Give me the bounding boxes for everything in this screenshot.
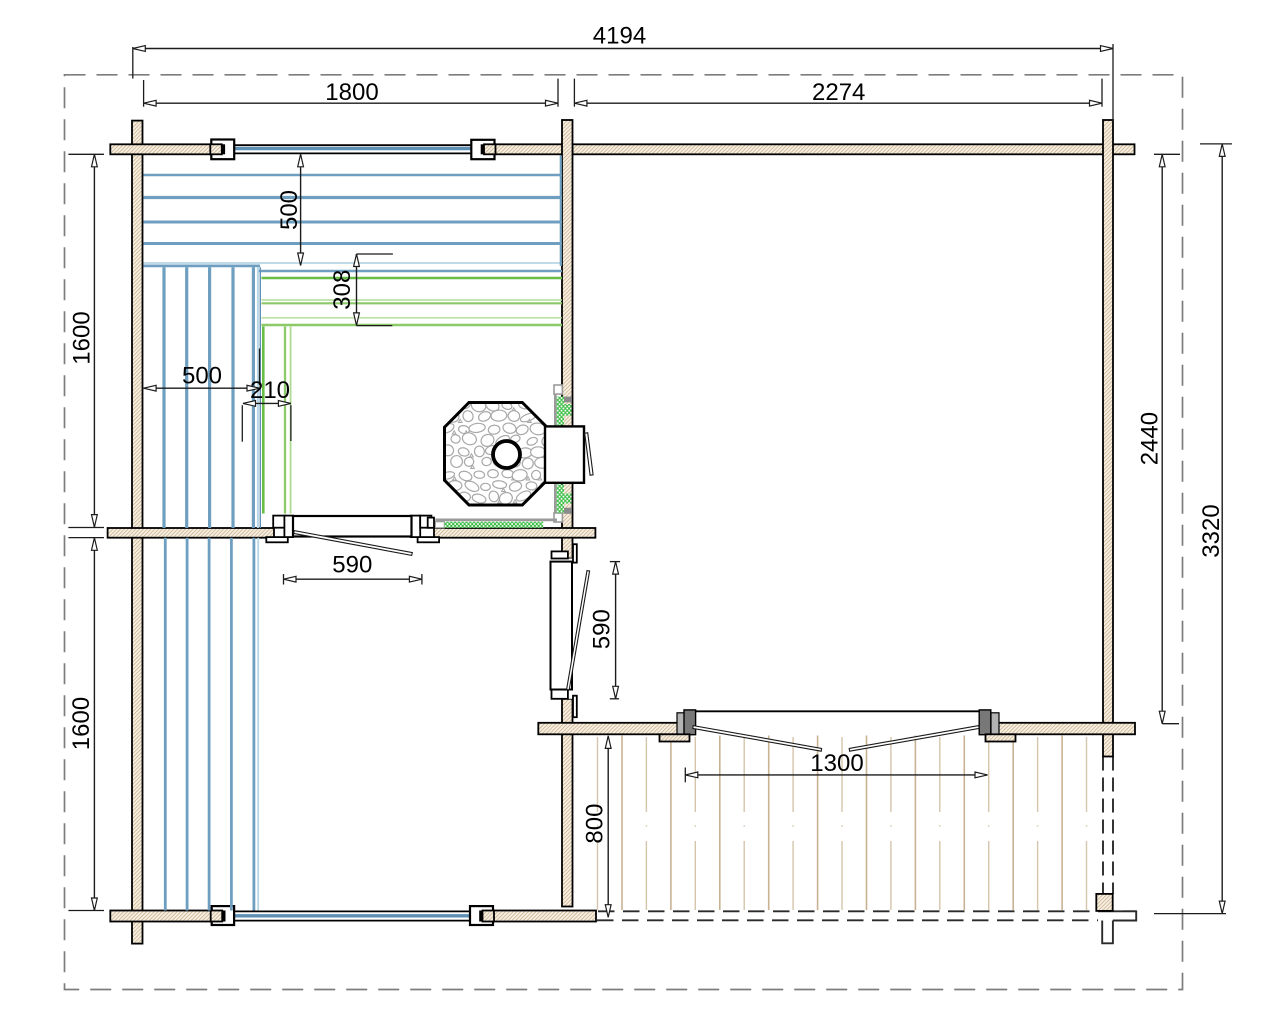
svg-text:308: 308 [329, 270, 356, 310]
svg-text:210: 210 [250, 377, 290, 404]
svg-text:3320: 3320 [1198, 504, 1225, 557]
svg-text:4194: 4194 [593, 23, 646, 50]
svg-text:1600: 1600 [68, 697, 95, 750]
svg-text:500: 500 [276, 190, 303, 230]
svg-text:1300: 1300 [810, 750, 863, 777]
svg-text:1800: 1800 [325, 79, 378, 106]
svg-text:1600: 1600 [68, 311, 95, 364]
svg-text:800: 800 [581, 804, 608, 844]
svg-text:590: 590 [332, 552, 372, 579]
svg-text:2274: 2274 [812, 79, 865, 106]
svg-text:500: 500 [182, 363, 222, 390]
svg-text:590: 590 [588, 609, 615, 649]
svg-text:2440: 2440 [1136, 412, 1163, 465]
